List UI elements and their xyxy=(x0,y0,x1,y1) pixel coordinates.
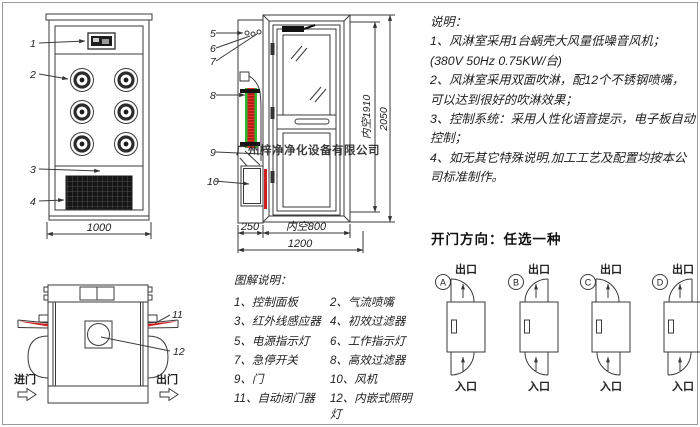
hepa-filter xyxy=(240,88,260,148)
part-label: 12 xyxy=(173,346,185,358)
legend-item: 1、控制面板 xyxy=(234,294,330,313)
cabinet-top-cap xyxy=(46,14,152,20)
hinge-strip xyxy=(264,169,267,209)
entry-label: 入口 xyxy=(455,380,477,393)
exit-label: 出口 xyxy=(528,262,550,276)
company-watermark: 广州梓净净化设备有限公司 xyxy=(236,142,380,158)
fan-box xyxy=(241,166,263,206)
legend-item: 5、电源指示灯 xyxy=(234,333,330,352)
notes-block: 说明： 1、风淋室采用1台蜗壳大风量低噪音风机； (380V 50Hz 0.75… xyxy=(430,13,696,188)
part-label: 1 xyxy=(30,38,36,50)
flow-arrow-out xyxy=(160,389,178,401)
note-line: 可以达到很好的吹淋效果； xyxy=(430,91,696,110)
door-option-b: B 出口 入口 xyxy=(509,262,559,393)
note-line: (380V 50Hz 0.75KW/台) xyxy=(430,52,696,71)
legend-item: 10、风机 xyxy=(330,371,414,390)
option-letter: D xyxy=(657,278,664,288)
fan-housing-top xyxy=(48,285,148,302)
door-direction-title: 开门方向：任选一种 xyxy=(431,228,562,248)
exit-label: 出门 xyxy=(156,372,178,386)
note-line: 2、风淋室采用双面吹淋，配12个不锈钢喷嘴， xyxy=(430,71,696,90)
part-label: 6 xyxy=(210,43,216,55)
door-option-a: A 出口 入口 xyxy=(436,262,486,393)
legend-item: 9、门 xyxy=(234,371,330,390)
entry-label: 进门 xyxy=(14,372,36,386)
dim-1200: 1200 xyxy=(288,238,313,250)
entry-label: 入口 xyxy=(672,380,694,393)
part-label: 4 xyxy=(30,196,36,208)
notes-title: 说明： xyxy=(430,13,696,32)
top-view-drawing: 11 12 进门 出门 xyxy=(6,264,224,424)
part-label: 5 xyxy=(210,28,216,40)
exit-label: 出口 xyxy=(600,262,622,276)
part-label: 8 xyxy=(210,90,216,102)
door-options-drawing: A 出口 入口 B 出口 xyxy=(424,257,700,407)
legend-item: 6、工作指示灯 xyxy=(330,333,414,352)
entry-label: 入口 xyxy=(600,380,622,393)
dim-inner-800: 内空800 xyxy=(286,220,327,233)
flow-arrow-in xyxy=(18,389,36,401)
legend-item: 8、高效过滤器 xyxy=(330,352,414,371)
dim-width-1000: 1000 xyxy=(87,222,112,234)
note-line: 4、如无其它特殊说明,加工工艺及配置均按本公司标准制作。 xyxy=(430,149,696,188)
legend-block: 图解说明： 1、控制面板 2、气流喷嘴 3、红外线感应器 4、初效过滤器 5、电… xyxy=(234,272,414,410)
legend-item: 12、内嵌式照明灯 xyxy=(330,390,414,409)
option-letter: B xyxy=(513,278,519,288)
legend-title: 图解说明： xyxy=(234,272,414,288)
door-option-d: D 出口 入口 xyxy=(653,262,700,393)
legend-item: 3、红外线感应器 xyxy=(234,313,330,332)
side-view-drawing: 5 6 7 8 9 10 250 内空800 1200 内空1910 2050 xyxy=(203,3,403,268)
note-line: 3、控制系统：采用人性化语音提示，电子板自动控制； xyxy=(430,110,696,149)
door-swing-left xyxy=(28,336,48,378)
intake-grille xyxy=(66,176,132,209)
dim-250: 250 xyxy=(240,221,260,233)
part-label: 7 xyxy=(210,56,217,68)
exit-label: 出口 xyxy=(672,262,694,276)
door-closer xyxy=(282,26,304,32)
entry-label: 入口 xyxy=(528,380,550,393)
front-view-drawing: 1 2 3 4 1000 xyxy=(12,6,182,250)
exit-label: 出口 xyxy=(455,262,477,276)
technical-drawing-sheet: 1 2 3 4 1000 xyxy=(0,0,700,427)
legend-item: 11、自动闭门器 xyxy=(234,390,330,409)
part-label: 9 xyxy=(210,147,216,159)
part-label: 2 xyxy=(29,69,36,81)
door-swing-right xyxy=(148,336,168,378)
air-nozzles xyxy=(71,69,138,156)
option-letter: A xyxy=(440,278,446,288)
option-letter: C xyxy=(585,278,592,288)
part-label: 10 xyxy=(207,176,219,188)
door-option-c: C 出口 入口 xyxy=(581,262,631,393)
dim-2050: 2050 xyxy=(378,107,390,132)
part-label: 11 xyxy=(172,309,183,321)
note-line: 1、风淋室采用1台蜗壳大风量低噪音风机； xyxy=(430,32,696,51)
legend-item: 4、初效过滤器 xyxy=(330,313,414,332)
dim-inner-1910: 内空1910 xyxy=(361,95,373,140)
door-glass xyxy=(283,35,330,115)
recessed-light xyxy=(85,321,112,348)
part-label: 3 xyxy=(30,164,36,176)
legend-item: 2、气流喷嘴 xyxy=(330,294,414,313)
legend-item: 7、急停开关 xyxy=(234,352,330,371)
door-handle xyxy=(295,119,329,124)
